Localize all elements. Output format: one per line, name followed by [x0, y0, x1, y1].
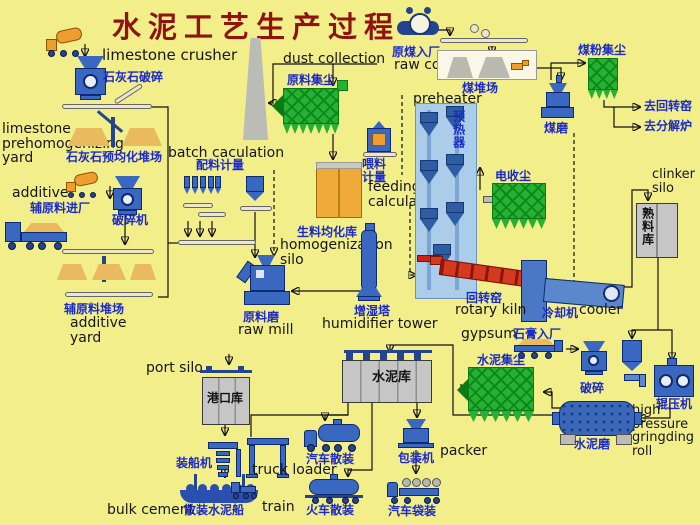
- truck-wheel-icon: [531, 352, 538, 359]
- small-truck-cab-icon: [231, 482, 240, 493]
- long-conveyor: [178, 240, 256, 245]
- batch-label-zh: 配料计量: [196, 159, 244, 172]
- zigzag-tooth: [490, 411, 501, 422]
- truck-wheel-icon: [60, 50, 67, 57]
- dust-collection-label-en: dust collection: [283, 52, 385, 67]
- conveyor: [440, 38, 528, 43]
- train-bulk-label-zh: 火车散装: [306, 504, 354, 517]
- silo-top-cap: [346, 352, 353, 360]
- zigzag-tooth: [315, 124, 323, 134]
- additive-in-label-zh: 辅原料进厂: [30, 202, 90, 215]
- flow-line: [604, 100, 640, 107]
- collector-zigzag: [283, 124, 339, 134]
- collector-zigzag: [588, 90, 618, 99]
- coal-mill-label-zh: 煤磨: [544, 122, 568, 135]
- ship-loader-chute: [216, 451, 230, 456]
- cyclone-icon: [420, 112, 438, 136]
- truck-wheel-icon: [545, 352, 552, 359]
- surge-hopper: [622, 340, 642, 362]
- zigzag-tooth: [512, 411, 523, 422]
- packer-machine: [403, 428, 429, 443]
- batch-hopper: [192, 176, 198, 188]
- cement-mill-machine: [559, 401, 635, 436]
- flatbed-truck-bed-icon: [21, 232, 67, 242]
- truck-bag-label-zh: 汽车袋装: [388, 505, 436, 518]
- clinker-silo-label-en: clinker silo: [652, 168, 700, 195]
- loader-vehicle-icon: [522, 60, 529, 66]
- truck-wheel-icon: [243, 493, 249, 499]
- conveyor-pulley-icon: [481, 29, 490, 38]
- unloader-pulley-icon: [406, 7, 413, 14]
- zigzag-tooth: [283, 124, 291, 134]
- bag-truck-bed-icon: [399, 488, 439, 496]
- cement-bag-icon: [432, 478, 441, 487]
- raw-mill-window: [256, 270, 264, 278]
- silo-top-cap: [380, 352, 387, 360]
- cement-dust-collector: [468, 367, 534, 411]
- unloader-wheel-icon: [409, 13, 431, 35]
- truck-bulk-label-zh: 汽车散装: [306, 453, 354, 466]
- coal-mill-stub: [556, 75, 562, 83]
- zigzag-tooth: [492, 219, 501, 229]
- truck-wheel-icon: [26, 242, 34, 250]
- humidifier-base: [358, 296, 380, 301]
- packer-label-en: packer: [440, 444, 487, 459]
- mill-support: [616, 434, 632, 445]
- bulk-ship-label-zh: 散装水泥船: [184, 504, 244, 517]
- flow-line: [614, 107, 640, 127]
- batch-hopper: [200, 176, 206, 188]
- batch-hopper: [215, 176, 221, 188]
- cement-bag-icon: [422, 478, 431, 487]
- small-truck-bed-icon: [240, 486, 256, 493]
- zigzag-tooth: [468, 411, 479, 422]
- cyclone-icon: [420, 208, 438, 232]
- silo-top-cap: [238, 366, 244, 373]
- crusher-rotor-icon: [83, 74, 98, 89]
- ship-loader-chute: [216, 458, 230, 463]
- flow-line: [325, 403, 348, 420]
- truck-wheel-icon: [433, 497, 440, 504]
- truck-wheel-icon: [68, 192, 74, 198]
- ship-loader-chute: [218, 472, 228, 477]
- conveyor: [198, 212, 226, 217]
- collector-zigzag: [468, 411, 534, 422]
- additive-crusher-label-zh: 破碎机: [112, 214, 148, 227]
- packer-base: [398, 443, 434, 448]
- cooler-label-en: cooler: [579, 303, 622, 318]
- ship-loader-label-zh: 装船机: [176, 457, 212, 470]
- cyclone-icon: [420, 160, 438, 184]
- batch-hopper: [184, 176, 190, 188]
- limestone-crusher-label-zh: 石灰石破碎: [103, 71, 163, 84]
- silo-top-cap: [414, 352, 421, 360]
- tanker-truck-tank-icon: [318, 424, 360, 442]
- collector-outlet-stub: [337, 80, 348, 91]
- conveyor: [240, 206, 272, 211]
- flow-line: [632, 330, 658, 338]
- flow-line: [544, 392, 561, 408]
- cement-dust-label-zh: 水泥集尘: [477, 354, 525, 367]
- zigzag-tooth: [510, 219, 519, 229]
- truck-loader-beam: [247, 438, 289, 445]
- rotary-kiln-label-en: rotary kiln: [455, 303, 526, 318]
- ship-loader-column: [236, 449, 241, 477]
- truck-wheel-icon: [79, 192, 85, 198]
- limestone-yard-label-zh: 石灰石预均化堆场: [66, 151, 162, 164]
- truck-wheel-icon: [322, 444, 330, 452]
- packer-label-zh: 包装机: [398, 452, 434, 465]
- bag-truck-cab-icon: [387, 482, 398, 497]
- homogenization-silo-roof: [316, 162, 362, 169]
- additive-label-en: additive: [12, 186, 69, 201]
- gypsum-label-zh: 石膏入厂: [513, 328, 561, 341]
- coal-dust-collector: [588, 58, 618, 90]
- truck-wheel-icon: [54, 242, 62, 250]
- limestone-crusher-base: [80, 95, 101, 100]
- truck-wheel-icon: [404, 497, 411, 504]
- zigzag-tooth: [323, 124, 331, 134]
- zigzag-tooth: [611, 90, 619, 99]
- elbow-pipe: [639, 374, 646, 387]
- batch-hopper: [208, 176, 214, 188]
- cyclone-icon: [446, 202, 464, 226]
- preheater-label-zh: 预热器: [452, 110, 465, 149]
- cement-crusher-label-zh: 破碎: [580, 382, 604, 395]
- raw-meal-dust-label-zh: 原料集尘: [287, 74, 335, 87]
- zigzag-tooth: [307, 124, 315, 134]
- raw-mill-label-en: raw mill: [238, 323, 294, 338]
- unloader-pulley-icon: [424, 7, 431, 14]
- raw-meal-dust-collector: [283, 88, 339, 124]
- raw-mill-machine: [250, 265, 285, 291]
- conveyor: [62, 249, 154, 254]
- zigzag-tooth: [299, 124, 307, 134]
- cement-mill-label-zh: 水泥磨: [574, 438, 610, 451]
- truck-wheel-icon: [8, 242, 16, 250]
- coal-mill-machine: [546, 92, 570, 107]
- conveyor-pulley-icon: [470, 24, 479, 33]
- crusher-rotor-icon: [588, 355, 599, 366]
- zigzag-tooth: [603, 90, 611, 99]
- humidifier-tower: [361, 230, 377, 290]
- conveyor: [65, 292, 153, 297]
- additive-yard-label-zh: 辅原料堆场: [64, 303, 124, 316]
- coal-mill-base: [541, 107, 574, 118]
- truck-wheel-icon: [307, 444, 315, 452]
- zigzag-tooth: [528, 219, 537, 229]
- cement-process-diagram: 水泥工艺生产过程 limestone crusher 石灰石破碎 limesto…: [0, 0, 700, 525]
- zigzag-tooth: [588, 90, 596, 99]
- ship-loader-platform: [208, 442, 238, 449]
- train-label-en: train: [262, 500, 295, 515]
- cement-crusher-base: [585, 371, 603, 375]
- raw-mill-base: [244, 291, 290, 305]
- press-roll-icon: [659, 374, 673, 388]
- to-calciner-label-zh: 去分解炉: [644, 120, 692, 133]
- silo-top-cap: [206, 366, 212, 373]
- zigzag-tooth: [501, 219, 510, 229]
- gypsum-truck-cab-icon: [554, 340, 563, 352]
- humidifier-label-en: humidifier tower: [322, 317, 438, 332]
- zigzag-tooth: [331, 124, 339, 134]
- flatbed-truck-cab-icon: [5, 222, 21, 242]
- truck-wheel-icon: [348, 444, 356, 452]
- press-roll-icon: [676, 374, 690, 388]
- cement-silo-label-zh: 水泥库: [372, 371, 411, 385]
- coal-dust-label-zh: 煤粉集尘: [578, 44, 626, 57]
- weigh-hopper: [246, 176, 264, 192]
- additive-yard-label-en: additive yard: [70, 316, 132, 345]
- conveyor: [62, 104, 152, 109]
- zigzag-tooth: [501, 411, 512, 422]
- zigzag-tooth: [519, 219, 528, 229]
- ep-dust-label-zh: 电收尘: [495, 170, 531, 183]
- cement-bag-icon: [402, 478, 411, 487]
- cyclone-icon: [446, 154, 464, 178]
- silo-top-cap: [363, 352, 370, 360]
- crusher-rotor-icon: [121, 193, 134, 206]
- silo-top-cap: [397, 352, 404, 360]
- electrostatic-precipitator: [492, 183, 546, 219]
- silo-divider: [338, 169, 340, 218]
- gypsum-label-en: gypsum: [461, 327, 517, 342]
- truck-wheel-icon: [251, 493, 257, 499]
- ship-loader-chute: [217, 465, 229, 470]
- zigzag-tooth: [479, 411, 490, 422]
- zigzag-tooth: [291, 124, 299, 134]
- truck-wheel-icon: [48, 50, 55, 57]
- truck-wheel-icon: [38, 242, 46, 250]
- clinker-silo-label-zh: 熟料库: [641, 207, 654, 246]
- conveyor: [183, 203, 213, 208]
- zigzag-tooth: [523, 411, 534, 422]
- cooler-wheel-icon: [603, 285, 620, 302]
- bulk-cement-label-en: bulk cement: [107, 503, 194, 518]
- to-rotary-kiln-label-zh: 去回转窑: [644, 100, 692, 113]
- feed-meter-screen: [372, 133, 386, 146]
- limestone-crusher-label-en: limestone crusher: [102, 48, 237, 64]
- coal-yard-label-zh: 煤堆场: [462, 82, 498, 95]
- port-silo-label-zh: 港口库: [207, 392, 243, 405]
- truck-wheel-icon: [424, 497, 431, 504]
- flow-line: [658, 330, 672, 360]
- cement-bag-icon: [412, 478, 421, 487]
- collector-zigzag: [492, 219, 546, 229]
- zigzag-tooth: [537, 219, 546, 229]
- cooler-label-zh: 冷却机: [542, 307, 578, 320]
- zigzag-tooth: [596, 90, 604, 99]
- truck-wheel-icon: [334, 444, 342, 452]
- cement-mill-trunnion: [634, 412, 642, 425]
- port-silo-label-en: port silo: [146, 361, 203, 376]
- mixer-truck-cab-icon: [66, 182, 76, 192]
- truck-wheel-icon: [90, 192, 96, 198]
- truck-wheel-icon: [391, 497, 398, 504]
- train-tank-icon: [309, 479, 359, 495]
- truck-wheel-icon: [233, 493, 239, 499]
- truck-wheel-icon: [72, 50, 79, 57]
